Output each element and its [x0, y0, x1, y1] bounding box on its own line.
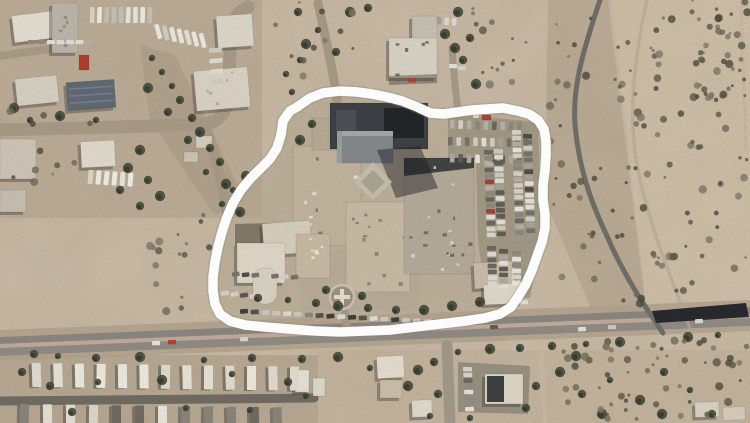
photo-grain — [0, 0, 750, 423]
film-grain-overlay — [0, 0, 750, 423]
aerial-scene — [0, 0, 750, 423]
satellite-image — [0, 0, 750, 423]
